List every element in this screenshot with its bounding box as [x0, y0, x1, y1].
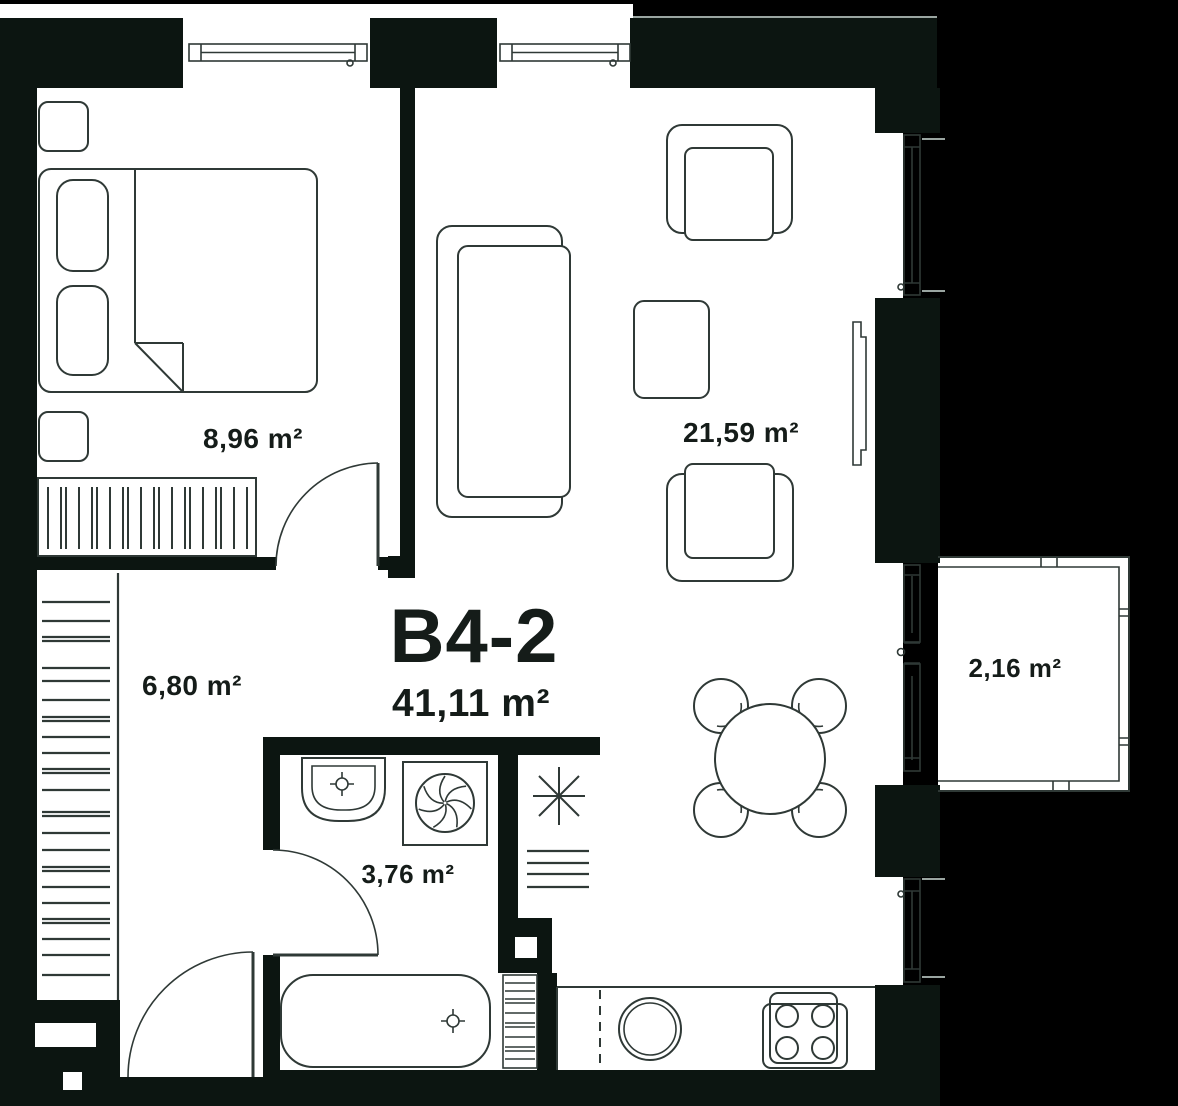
wall-segment	[0, 85, 37, 1005]
sofa	[437, 226, 570, 517]
left-wall-niche	[35, 1023, 96, 1047]
wall-segment	[537, 973, 557, 1070]
wall-segment	[263, 1070, 940, 1106]
vent-floor	[518, 837, 600, 918]
bedroom-area-label: 8,96 m²	[203, 423, 303, 454]
building-outline-top-right	[633, 16, 937, 18]
nightstand	[39, 412, 88, 461]
left-wall-square	[63, 1072, 82, 1090]
dining-table	[715, 704, 825, 814]
wall-segment	[0, 557, 276, 570]
wall-segment	[378, 557, 415, 570]
wall-segment	[263, 955, 280, 1070]
wall-segment	[630, 18, 937, 88]
unit-total-area-label: 41,11 m²	[392, 682, 550, 725]
entrance-door-strip	[128, 1070, 263, 1077]
wall-segment	[875, 785, 940, 877]
floor-plan-canvas: 8,96 m² 21,59 m² 6,80 m² 3,76 m² 2,16 m²…	[0, 0, 1178, 1106]
bathroom-area-label: 3,76 m²	[361, 859, 454, 889]
floor-plan: 8,96 m² 21,59 m² 6,80 m² 3,76 m² 2,16 m²…	[0, 0, 1178, 1106]
shaft-notch	[515, 937, 537, 958]
radiator-nook-floor	[498, 973, 537, 1070]
wall-segment	[120, 1077, 263, 1106]
wall-segment	[875, 298, 940, 563]
tv-panel	[853, 322, 866, 465]
room-bathroom-floor	[280, 755, 498, 1070]
bedroom-door-opening	[276, 557, 378, 570]
wall-segment	[875, 985, 940, 1070]
balcony-area-label: 2,16 m²	[968, 653, 1061, 683]
living-area-label: 21,59 m²	[683, 417, 799, 448]
double-bed	[39, 169, 317, 392]
wall-segment	[875, 88, 940, 133]
wall-segment	[0, 18, 183, 88]
kitchen-column-floor	[552, 918, 600, 987]
window-niche-right-1	[875, 133, 903, 298]
pillow	[57, 180, 108, 271]
building-outline-top	[0, 4, 633, 18]
window-niche-right-2	[875, 563, 903, 785]
armchair	[667, 464, 793, 581]
coffee-table	[634, 301, 709, 398]
wall-segment	[0, 1000, 120, 1106]
unit-code-label: B4-2	[390, 594, 559, 679]
pillow	[57, 286, 108, 375]
bathroom-door-opening	[263, 850, 280, 955]
wall-segment	[400, 88, 415, 570]
armchair	[667, 125, 792, 240]
nightstand	[39, 102, 88, 151]
wall-segment	[263, 737, 600, 755]
wall-segment	[370, 18, 497, 88]
wall-segment	[263, 737, 280, 850]
hallway-area-label: 6,80 m²	[142, 670, 242, 701]
